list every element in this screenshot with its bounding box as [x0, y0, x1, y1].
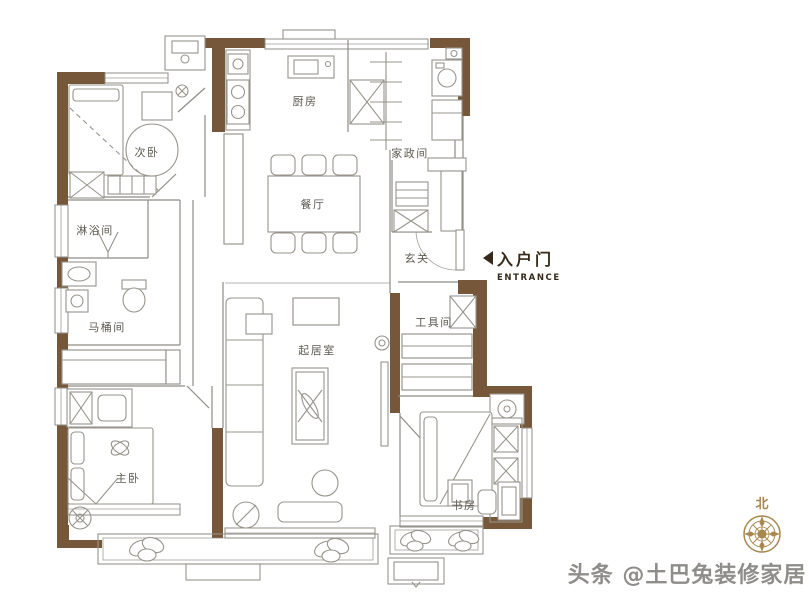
plant-icon [398, 528, 432, 551]
tv [381, 362, 388, 446]
rug [293, 298, 339, 325]
room-label-toilet: 马桶间 [88, 320, 126, 334]
room-label-foyer: 玄关 [405, 251, 430, 265]
room-label-kitchen: 厨房 [293, 95, 318, 108]
room-label-laundry: 家政间 [391, 146, 429, 160]
floor-plan-svg: 次卧 厨房 家政间 餐厅 淋浴间 玄关 马桶间 工具间 起居室 主卧 书房 入户… [0, 0, 809, 603]
room-label-shower: 淋浴间 [76, 224, 114, 237]
desk [498, 482, 520, 520]
chair [478, 490, 496, 514]
entrance-arrow-icon [483, 251, 493, 265]
room-label-study: 书房 [452, 499, 477, 512]
room-label-secondary-bedroom: 次卧 [135, 145, 160, 159]
compass-north-label: 北 [755, 497, 768, 512]
wardrobe [62, 350, 180, 384]
entrance-annotation: 入户门 ENTRANCE [483, 250, 561, 283]
bathroom-furniture [62, 232, 146, 312]
floor-plan-image: 次卧 厨房 家政间 餐厅 淋浴间 玄关 马桶间 工具间 起居室 主卧 书房 入户… [0, 0, 809, 603]
watermark: 头条 @土巴兔装修家居 头条 @土巴兔装修家居 [566, 560, 807, 588]
room-label-master-bedroom: 主卧 [116, 472, 141, 485]
living-room-furniture [226, 298, 389, 528]
plant-icon [127, 535, 166, 561]
kitchen-sink [288, 56, 334, 78]
bathroom-sink [62, 262, 96, 286]
bench [278, 502, 342, 522]
tool-room-furniture [402, 296, 476, 390]
watermark-text: 头条 @土巴兔装修家居 [568, 562, 807, 588]
room-label-dining: 餐厅 [301, 197, 326, 211]
desk [142, 92, 172, 120]
room-label-living: 起居室 [298, 343, 336, 357]
room-label-tool-room: 工具间 [415, 316, 453, 329]
stool [312, 470, 338, 496]
plant-icon [312, 536, 351, 562]
plant-icon [446, 528, 480, 551]
stove-icon [227, 80, 249, 124]
entrance-label: 入户门 [497, 250, 554, 269]
entrance-sublabel: ENTRANCE [497, 273, 561, 283]
compass: 北 [744, 497, 780, 552]
secondary-bedroom-furniture [69, 36, 205, 198]
